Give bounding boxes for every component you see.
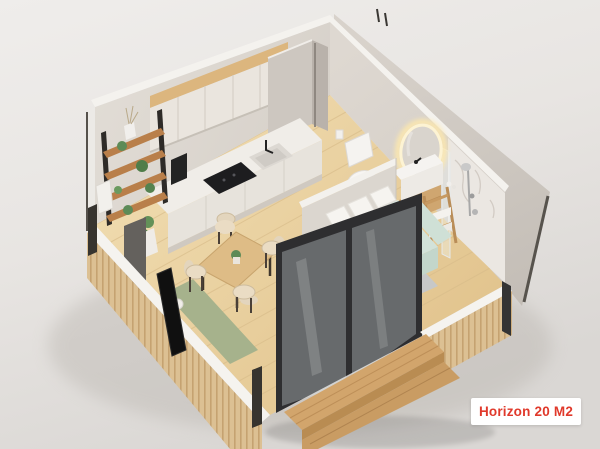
label-text: Horizon 20 M2	[479, 404, 573, 419]
corner-post	[502, 281, 511, 336]
corner-post	[88, 204, 97, 256]
floor-plan-render: Horizon 20 M2	[0, 0, 600, 449]
leaning-wall-panel	[96, 180, 113, 214]
isometric-scene	[0, 0, 600, 449]
label-badge: Horizon 20 M2	[471, 398, 581, 425]
toilet-paper-holder	[336, 130, 343, 139]
corner-post	[252, 366, 262, 428]
